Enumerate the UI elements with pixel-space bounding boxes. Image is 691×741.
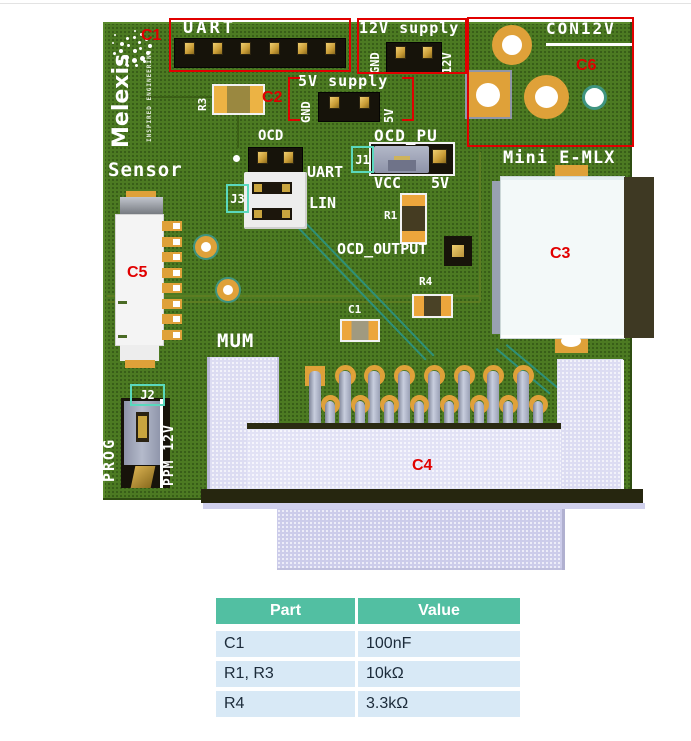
c5-pin-tip [173,223,180,229]
c5-pin-tip [173,332,180,338]
board-bottom-edge [201,489,643,503]
c4-pin [428,371,440,431]
callout-c5: C5 [127,264,147,282]
resistor-r4 [412,294,453,318]
jumper-cap-contact [394,156,410,160]
j3-lin-label: LIN [309,196,336,212]
c5-pin-tip [173,301,180,307]
fiducial-dot [233,155,240,162]
j3-jumper-slot [252,208,292,220]
c4-right-column [557,359,623,497]
j3-designator: J3 [230,192,244,206]
j2-prog-label: PROG [102,400,118,482]
r3-silk-label: R3 [197,85,209,111]
j1-jumper-cap [374,146,429,173]
table-cell-part: R1, R3 [216,661,355,687]
callout-c1: C1 [141,27,161,45]
c5-pin-pad [162,221,182,231]
j1-5v-label: 5V [431,176,449,192]
logo-dot [112,42,114,44]
j2-designator: J2 [140,388,154,402]
logo-dot [134,30,136,32]
logo-dot [114,34,116,36]
c5-pad-bottom [125,360,155,368]
c1-silk-label: C1 [348,304,361,316]
ocd-header [248,147,303,173]
logo-dot [120,42,124,46]
c5-pin-pad [162,268,182,278]
table-cell-value: 3.3kΩ [358,691,520,717]
c4-pin [458,371,470,431]
header-pin [283,151,294,164]
c5-pin-pad [162,252,182,262]
c3-latch-block [624,177,654,338]
j3-designator-box: J3 [226,184,249,213]
supply-12v-annotation-box [357,18,467,74]
c4-pin [487,371,499,431]
table-body: C1100nFR1, R310kΩR43.3kΩ [216,631,520,717]
r1-silk-label: R1 [384,210,397,222]
j3-jumper-block [244,172,307,229]
logo-dot [126,37,129,40]
table-cell-value: 100nF [358,631,520,657]
c5-pin-tip [173,285,180,291]
table-header-value: Value [358,598,520,624]
table-row: R1, R310kΩ [216,661,520,687]
supply-5v-header [318,92,380,122]
header-pin [329,96,340,109]
supply-5v-gnd-label: GND [300,91,313,123]
c4-pin [398,371,410,431]
callout-c2: C2 [262,89,282,107]
c4-front-housing [247,429,561,491]
ocd-silk-label: OCD [258,129,283,144]
c2-bracket-right [402,77,414,121]
table-row: C1100nF [216,631,520,657]
header-pin [359,96,370,109]
melexis-logo: Melexis [110,50,140,148]
pad-contact [452,245,464,257]
sensor-silk-label: Sensor [108,161,183,181]
mini-emlx-silk-label: Mini E-MLX [503,150,615,168]
c5-pin-tip [173,270,180,276]
callout-c4: C4 [412,457,432,475]
resistor-r3 [212,84,265,115]
callout-c3: C3 [550,245,570,263]
mum-silk-label: MUM [217,332,254,352]
capacitor-c1 [340,319,380,342]
page-rule-line [0,3,691,4]
j2-contact-slot [136,412,149,442]
resistor-r1 [400,193,427,244]
ocd-pu-silk-label: OCD_PU [374,128,438,145]
c4-mating-tongue [277,509,565,570]
jumper-cap-notch [388,160,416,171]
j1-vcc-label: VCC [374,176,401,192]
table-header-part: Part [216,598,355,624]
c5-bottom-flange [120,345,159,361]
c5-pin-pad [162,330,182,340]
c5-body-tick [118,335,127,338]
table-cell-part: C1 [216,631,355,657]
trace-line [479,152,481,302]
j2-designator-box: J2 [130,384,165,406]
c5-body-tick [118,301,127,304]
table-cell-value: 10kΩ [358,661,520,687]
c5-pin-pad [162,237,182,247]
con12v-annotation-box [467,17,634,147]
r4-silk-label: R4 [419,276,432,288]
c5-pin-tip [173,316,180,322]
table-cell-part: R4 [216,691,355,717]
c5-pin-pad [162,299,182,309]
j1-designator: J1 [355,153,369,167]
pad-hole [561,335,581,347]
annotated-board-figure: Melexis INSPIRED ENGINEERING [0,0,691,741]
supply-5v-pin-label: 5V [383,93,396,123]
parts-table: Part Value C1100nFR1, R310kΩR43.3kΩ [216,598,520,721]
supply-5v-silk-label: 5V supply [298,74,388,90]
j2-ppm-label: PPM 12V [163,396,177,486]
c4-pin [517,371,529,431]
c5-pin-pad [162,314,182,324]
header-pin [257,151,268,164]
j3-jumper-slot [252,182,292,194]
melexis-tagline: INSPIRED ENGINEERING [147,58,157,142]
c4-pin [339,371,351,431]
j1-open-pin [432,149,447,164]
j2-contact [138,416,147,438]
ocd-output-silk-label: OCD_OUTPUT [337,242,427,258]
table-header-row: Part Value [216,598,520,624]
via-pad [195,236,217,258]
c4-pin [309,371,321,431]
logo-dot [127,44,130,47]
c4-pin [368,371,380,431]
via-pad [217,279,239,301]
silk-line [621,360,624,492]
j1-designator-box: J1 [351,146,374,173]
c2-bracket-left [288,77,300,121]
c5-pin-tip [173,239,180,245]
ocd-output-pad [444,236,472,266]
c5-pin-pad [162,283,182,293]
table-row: R43.3kΩ [216,691,520,717]
callout-c6: C6 [576,57,596,75]
uart-annotation-box [169,18,351,72]
j3-uart-label: UART [307,165,343,181]
c5-pin-tip [173,254,180,260]
logo-dot [133,36,136,39]
c3-pad-bottom [555,339,588,353]
